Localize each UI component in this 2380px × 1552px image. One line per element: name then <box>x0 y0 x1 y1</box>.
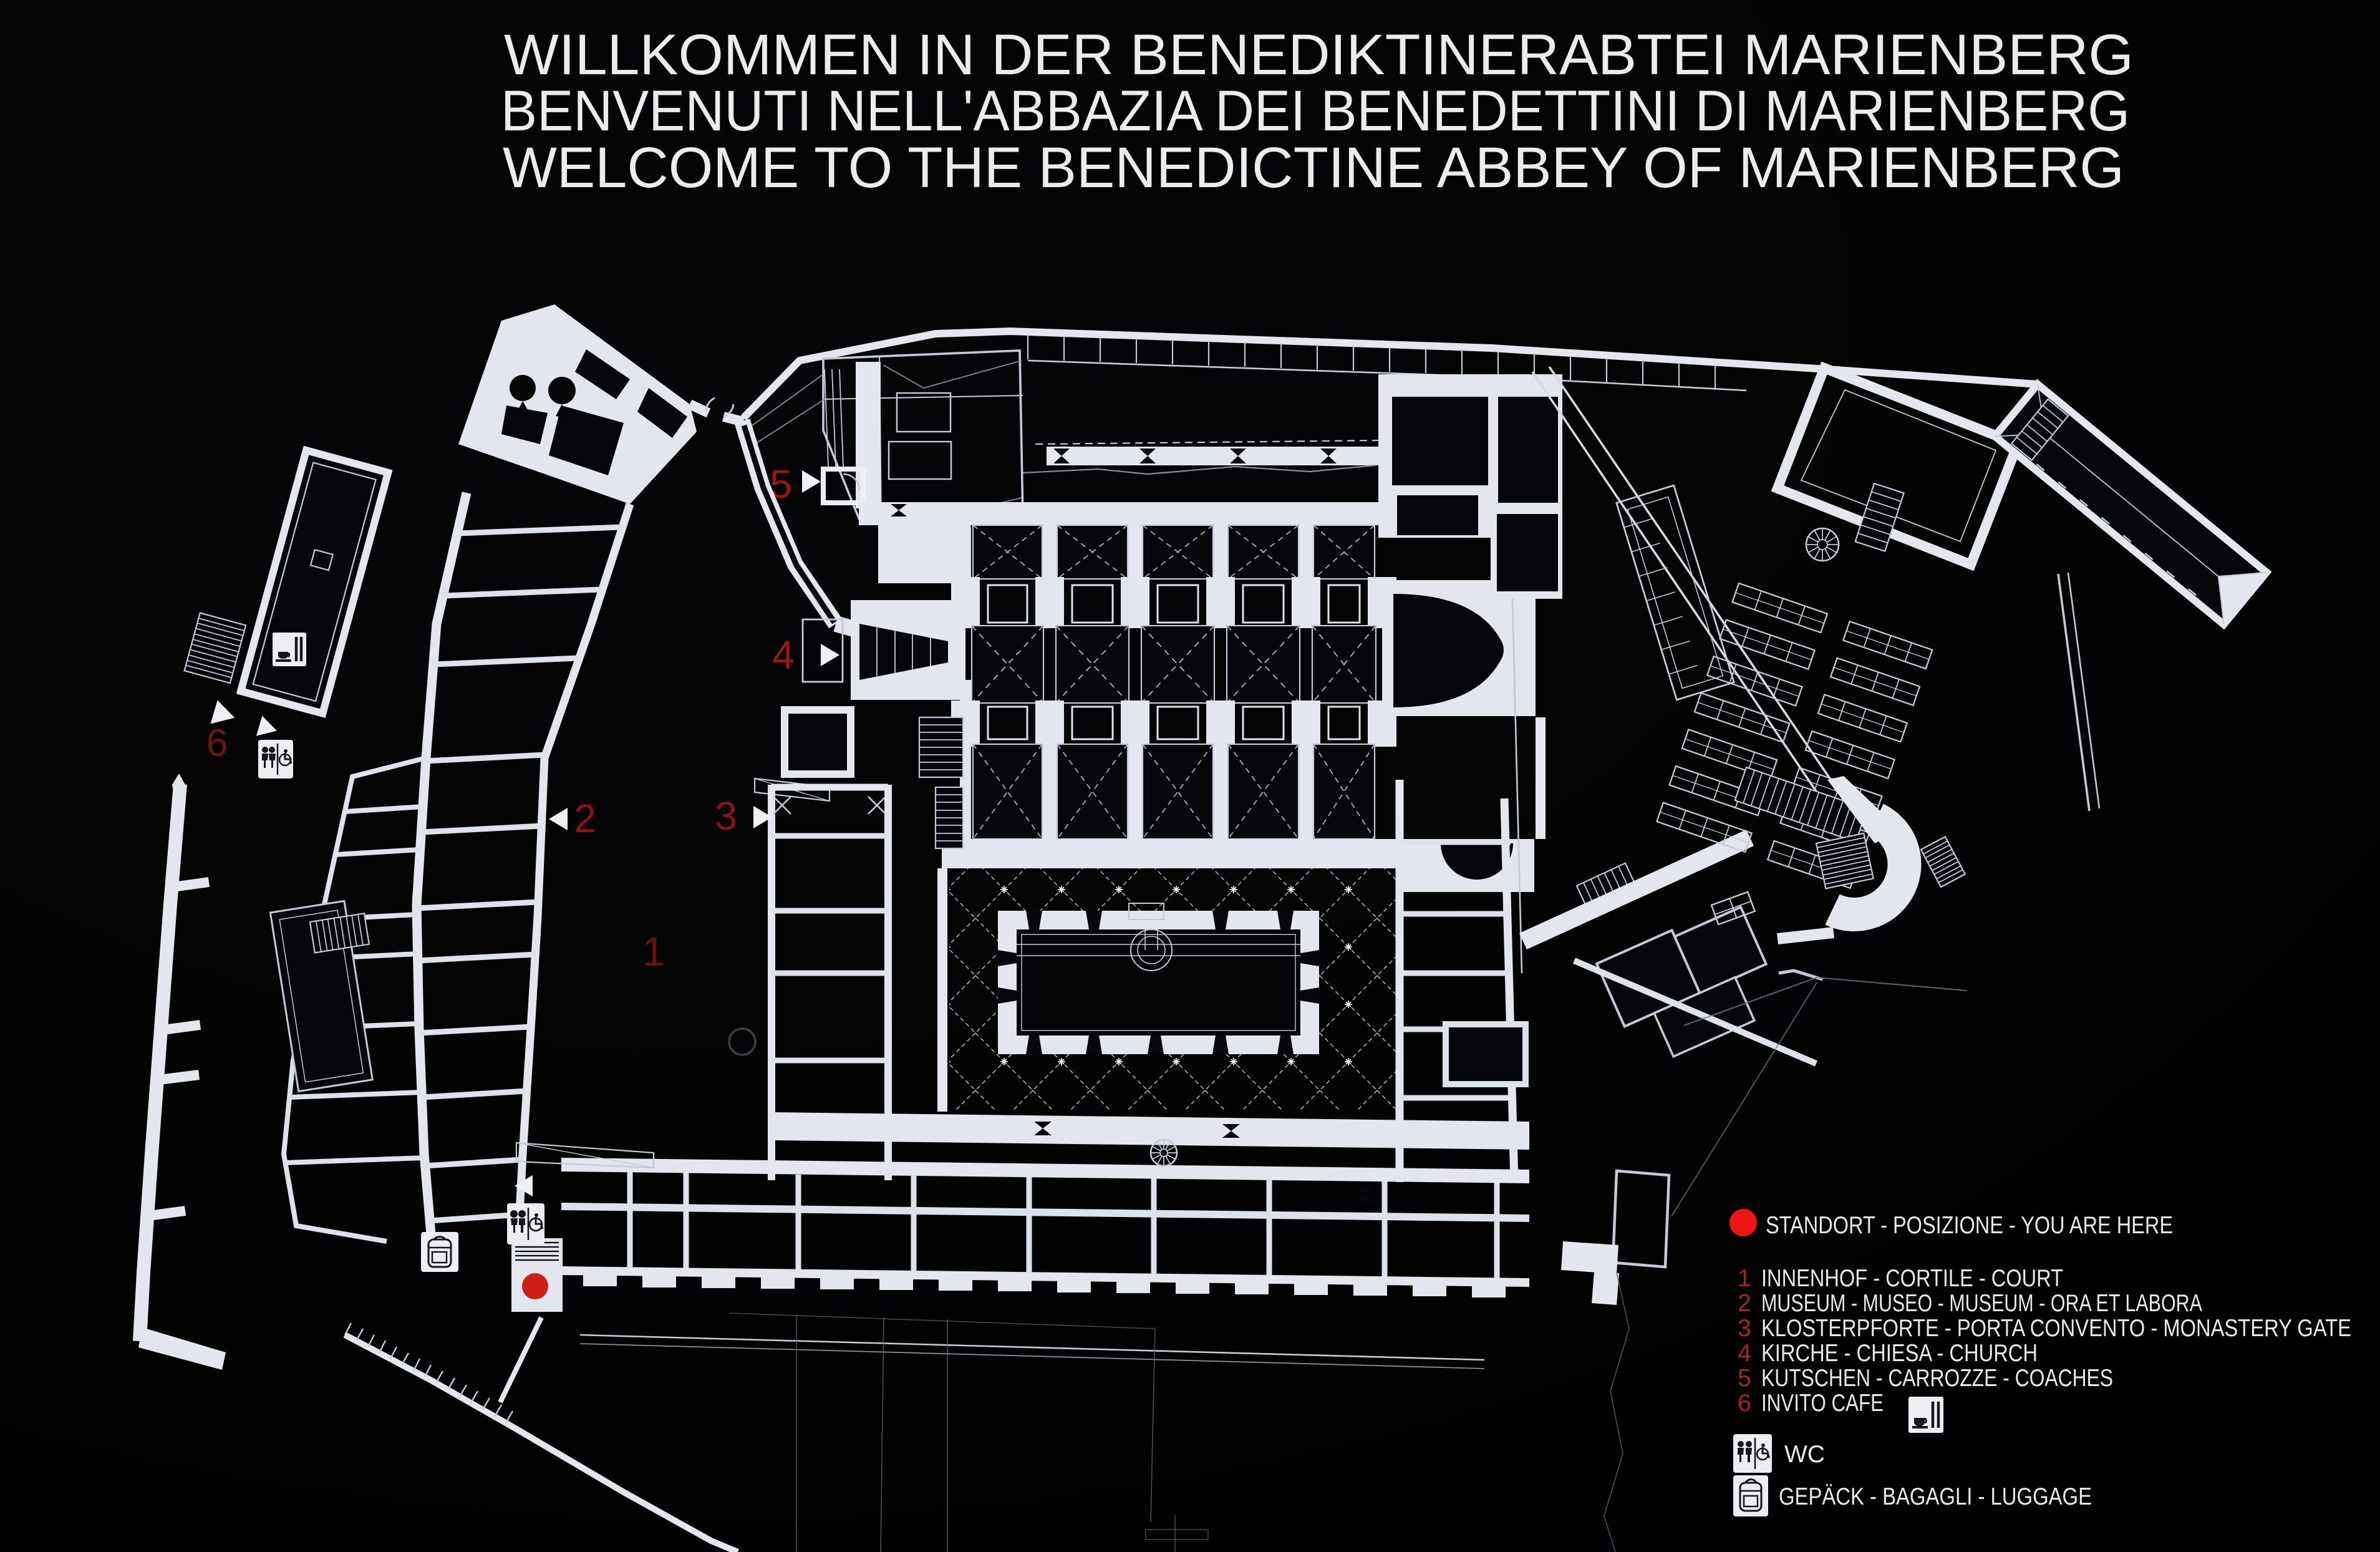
svg-text:2: 2 <box>1738 1290 1751 1317</box>
svg-text:MUSEUM - MUSEO - MUSEUM - ORA: MUSEUM - MUSEO - MUSEUM - ORA ET LABORA <box>1761 1290 2202 1317</box>
svg-text:3: 3 <box>1738 1315 1751 1342</box>
svg-text:WC: WC <box>1784 1441 1825 1468</box>
svg-text:6: 6 <box>206 722 228 765</box>
svg-text:5: 5 <box>1738 1365 1751 1392</box>
svg-text:3: 3 <box>715 793 737 838</box>
svg-text:KUTSCHEN - CARROZZE - COACHES: KUTSCHEN - CARROZZE - COACHES <box>1761 1365 2113 1392</box>
svg-text:4: 4 <box>1738 1340 1751 1367</box>
svg-text:2: 2 <box>574 796 596 841</box>
svg-text:1: 1 <box>1738 1265 1751 1292</box>
svg-text:BENVENUTI NELL'ABBAZIA DEI BEN: BENVENUTI NELL'ABBAZIA DEI BENEDETTINI D… <box>501 79 2130 143</box>
svg-text:KLOSTERPFORTE - PORTA CONVENTO: KLOSTERPFORTE - PORTA CONVENTO - MONASTE… <box>1761 1315 2351 1342</box>
svg-text:KIRCHE - CHIESA - CHURCH: KIRCHE - CHIESA - CHURCH <box>1761 1340 2038 1367</box>
svg-text:4: 4 <box>772 633 795 677</box>
svg-text:6: 6 <box>1738 1390 1751 1417</box>
svg-text:INVITO CAFE: INVITO CAFE <box>1761 1390 1884 1417</box>
svg-text:GEPÄCK - BAGAGLI - LUGGAGE: GEPÄCK - BAGAGLI - LUGGAGE <box>1779 1483 2092 1510</box>
svg-text:1: 1 <box>642 928 665 974</box>
svg-text:INNENHOF - CORTILE - COURT: INNENHOF - CORTILE - COURT <box>1761 1265 2063 1292</box>
svg-text:WELCOME TO THE BENEDICTINE ABB: WELCOME TO THE BENEDICTINE ABBEY OF MARI… <box>503 136 2124 200</box>
svg-text:WILLKOMMEN IN DER BENEDIKTINER: WILLKOMMEN IN DER BENEDIKTINERABTEI MARI… <box>504 23 2134 87</box>
svg-text:STANDORT - POSIZIONE - YOU ARE: STANDORT - POSIZIONE - YOU ARE HERE <box>1766 1212 2173 1239</box>
